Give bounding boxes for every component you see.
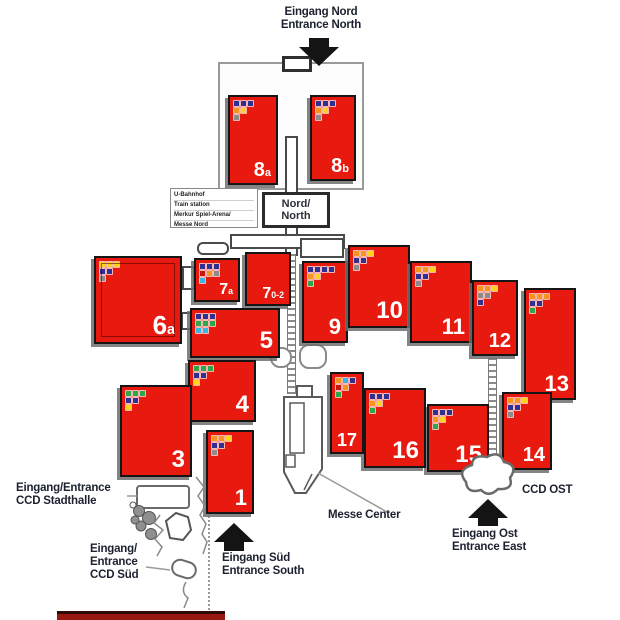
entrance-east-line1: Eingang Ost [452, 528, 518, 540]
ccd-sued-line3: CCD Süd [90, 569, 138, 581]
ccd-sued-building[interactable] [170, 558, 198, 581]
ccd-ost-building[interactable] [462, 454, 513, 493]
ccd-sued-pointer [146, 567, 170, 570]
ccd-sued-label: Eingang/EntranceCCD Süd [90, 543, 138, 582]
ccd-stadthalle-label: Eingang/EntranceCCD Stadthalle [16, 482, 111, 508]
arrow-south-icon [214, 523, 254, 551]
ccd-sued-line2: Entrance [90, 556, 138, 568]
entrance-east-line2: Entrance East [452, 541, 526, 553]
stadthalle-hexagon[interactable] [166, 513, 191, 540]
ccd-ost-label: CCD OST [522, 484, 572, 497]
arrow-north-icon [299, 38, 339, 66]
entrance-south-line2: Entrance South [222, 565, 304, 577]
footpath-south [196, 477, 207, 554]
messe-center-building[interactable] [284, 386, 322, 493]
ccd-stadthalle-line2: CCD Stadthalle [16, 495, 96, 507]
entrance-east-label: Eingang OstEntrance East [452, 528, 526, 554]
ccd-stadthalle-line1: Eingang/Entrance [16, 482, 111, 494]
fairground-map: Eingang NordEntrance North U-Bahnhof Tra… [0, 0, 620, 620]
ccd-stadthalle-building[interactable] [137, 486, 189, 508]
messe-center-pointer [318, 473, 387, 512]
footpath-ccd-sued [183, 582, 188, 608]
map-outline-overlay [0, 0, 620, 620]
entrance-south-label: Eingang SüdEntrance South [222, 552, 304, 578]
messe-center-label: Messe Center [328, 509, 400, 522]
cropped-red-strip [57, 611, 225, 620]
entrance-south-line1: Eingang Süd [222, 552, 290, 564]
arrow-east-icon [468, 499, 508, 526]
ccd-sued-line1: Eingang/ [90, 543, 137, 555]
